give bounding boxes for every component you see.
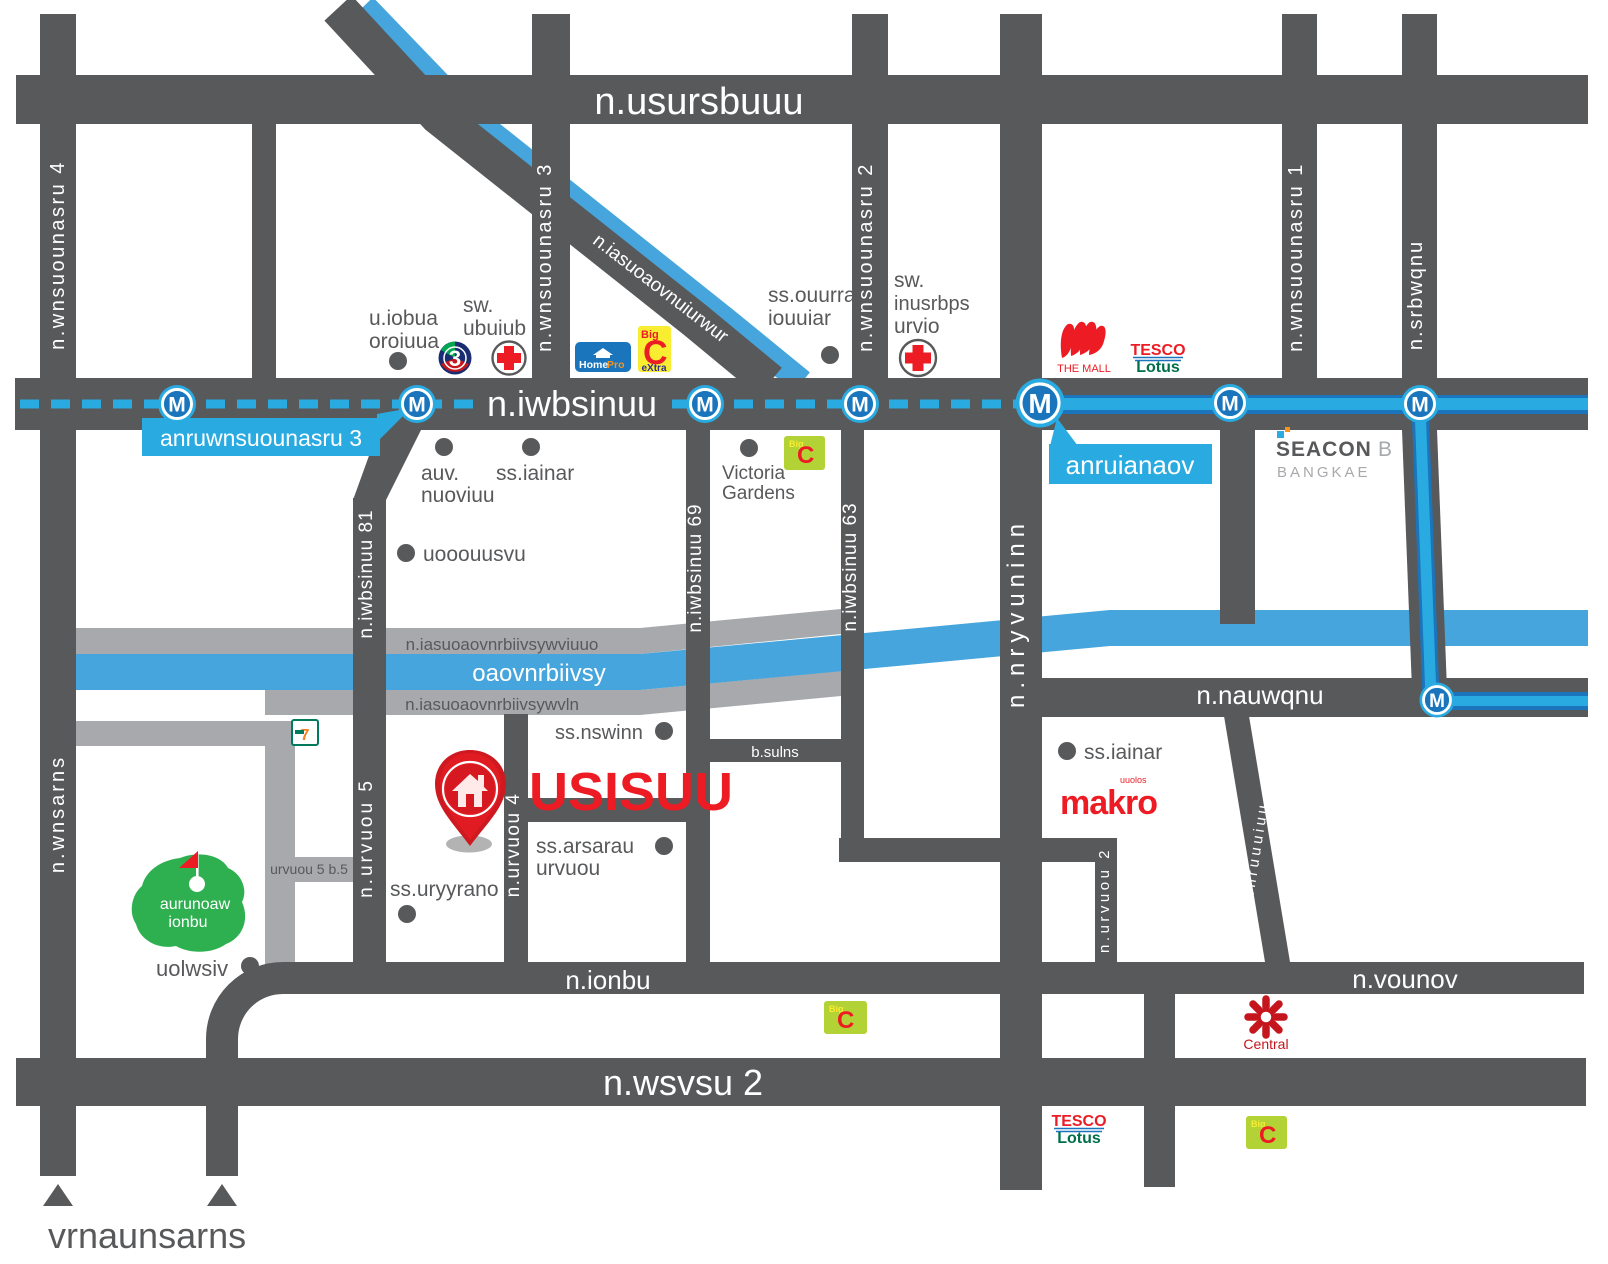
svg-text:ss.arsarau: ss.arsarau <box>536 835 634 858</box>
svg-text:n.iwbsinuu 63: n.iwbsinuu 63 <box>840 502 861 631</box>
svg-text:C: C <box>1259 1122 1276 1149</box>
svg-text:b.sulns: b.sulns <box>751 744 799 761</box>
svg-text:7: 7 <box>301 727 310 744</box>
svg-text:n.urvuou 4: n.urvuou 4 <box>503 793 524 898</box>
svg-text:Victoria: Victoria <box>722 463 785 484</box>
svg-text:n.nryvuninn: n.nryvuninn <box>1003 518 1030 708</box>
svg-text:uooouusvu: uooouusvu <box>423 543 526 566</box>
svg-text:n.wnsuounasru 1: n.wnsuounasru 1 <box>1285 162 1307 352</box>
svg-text:USISUU: USISUU <box>529 762 733 822</box>
svg-text:TESCO: TESCO <box>1051 1113 1106 1130</box>
svg-text:n.iasuoaovnrbiivsywviuuo: n.iasuoaovnrbiivsywviuuo <box>406 635 599 654</box>
svg-text:u.iobua: u.iobua <box>369 307 438 330</box>
svg-text:Central: Central <box>1243 1036 1288 1052</box>
svg-text:n.wnsuounasru 3: n.wnsuounasru 3 <box>534 162 556 352</box>
svg-text:uolwsiv: uolwsiv <box>156 956 228 981</box>
svg-text:auv.: auv. <box>421 462 459 485</box>
svg-text:n.wnsuounasru 4: n.wnsuounasru 4 <box>47 160 69 350</box>
svg-text:urvio: urvio <box>894 315 940 338</box>
svg-text:M: M <box>1221 393 1239 416</box>
svg-text:C: C <box>837 1007 854 1034</box>
svg-text:oaovnrbiivsy: oaovnrbiivsy <box>472 660 605 687</box>
svg-text:iouuiar: iouuiar <box>768 307 831 330</box>
svg-text:vrnaunsarns: vrnaunsarns <box>48 1215 246 1256</box>
svg-text:TESCO: TESCO <box>1130 342 1185 359</box>
svg-text:M: M <box>1429 691 1445 712</box>
svg-text:ubuiub: ubuiub <box>463 317 526 340</box>
svg-text:M: M <box>851 394 869 417</box>
svg-text:Gardens: Gardens <box>722 483 795 504</box>
svg-text:oroiuua: oroiuua <box>369 330 439 353</box>
svg-text:n.iwbsinuu: n.iwbsinuu <box>487 383 657 424</box>
svg-text:inusrbps: inusrbps <box>894 293 970 315</box>
svg-text:nuoviuu: nuoviuu <box>421 484 495 507</box>
svg-text:n.iasuoaovnrbiivsywvln: n.iasuoaovnrbiivsywvln <box>405 695 579 714</box>
svg-text:eXtra: eXtra <box>641 363 666 374</box>
svg-text:BANGKAE: BANGKAE <box>1277 464 1371 481</box>
svg-text:n.vounov: n.vounov <box>1352 964 1458 994</box>
svg-text:n.usursbuuu: n.usursbuuu <box>594 81 803 123</box>
svg-text:sw.: sw. <box>463 294 493 317</box>
svg-text:aurunoaw: aurunoaw <box>160 896 231 913</box>
svg-text:anruianaov: anruianaov <box>1066 450 1195 480</box>
svg-text:ss.nswinn: ss.nswinn <box>555 722 643 744</box>
svg-text:ionbu: ionbu <box>168 914 207 931</box>
svg-text:anruwnsuounasru 3: anruwnsuounasru 3 <box>160 425 362 451</box>
svg-text:3: 3 <box>449 346 461 371</box>
svg-text:sw.: sw. <box>894 269 924 292</box>
svg-text:n.nauwqnu: n.nauwqnu <box>1196 680 1323 710</box>
svg-text:n.wsvsu 2: n.wsvsu 2 <box>603 1062 763 1103</box>
svg-text:Home: Home <box>579 359 608 371</box>
svg-text:B: B <box>1378 438 1392 461</box>
svg-text:M: M <box>168 394 186 417</box>
svg-text:n.ionbu: n.ionbu <box>565 965 650 995</box>
svg-text:THE MALL: THE MALL <box>1057 363 1111 375</box>
svg-text:n.urvuou 2: n.urvuou 2 <box>1096 847 1113 953</box>
svg-text:urvuou 5 b.5: urvuou 5 b.5 <box>270 861 348 877</box>
svg-text:ss.ouurra: ss.ouurra <box>768 284 856 307</box>
svg-text:ss.iainar: ss.iainar <box>496 462 574 485</box>
svg-text:n.wnsarns: n.wnsarns <box>47 755 69 873</box>
svg-text:makro: makro <box>1060 784 1157 822</box>
svg-text:n.srbwqnu: n.srbwqnu <box>1405 240 1427 350</box>
svg-text:Pro: Pro <box>607 359 625 371</box>
svg-text:SEACON: SEACON <box>1276 438 1372 461</box>
svg-text:M: M <box>1411 394 1429 417</box>
svg-text:M: M <box>696 394 714 417</box>
svg-text:n.wnsuounasru 2: n.wnsuounasru 2 <box>855 162 877 352</box>
svg-text:M: M <box>408 394 426 417</box>
svg-text:uuolos: uuolos <box>1120 775 1147 785</box>
svg-text:M: M <box>1028 388 1051 419</box>
svg-text:n.iwbsinuu 81: n.iwbsinuu 81 <box>356 509 377 638</box>
svg-text:C: C <box>797 442 814 469</box>
svg-text:n.iwbsinuu 69: n.iwbsinuu 69 <box>685 503 706 632</box>
svg-text:Lotus: Lotus <box>1057 1130 1101 1147</box>
svg-text:ss.uryyrano: ss.uryyrano <box>390 878 499 901</box>
svg-text:Lotus: Lotus <box>1136 359 1180 376</box>
svg-text:n.urvuou 5: n.urvuou 5 <box>356 778 377 898</box>
svg-text:urvuou: urvuou <box>536 857 600 880</box>
svg-text:ss.iainar: ss.iainar <box>1084 741 1162 764</box>
